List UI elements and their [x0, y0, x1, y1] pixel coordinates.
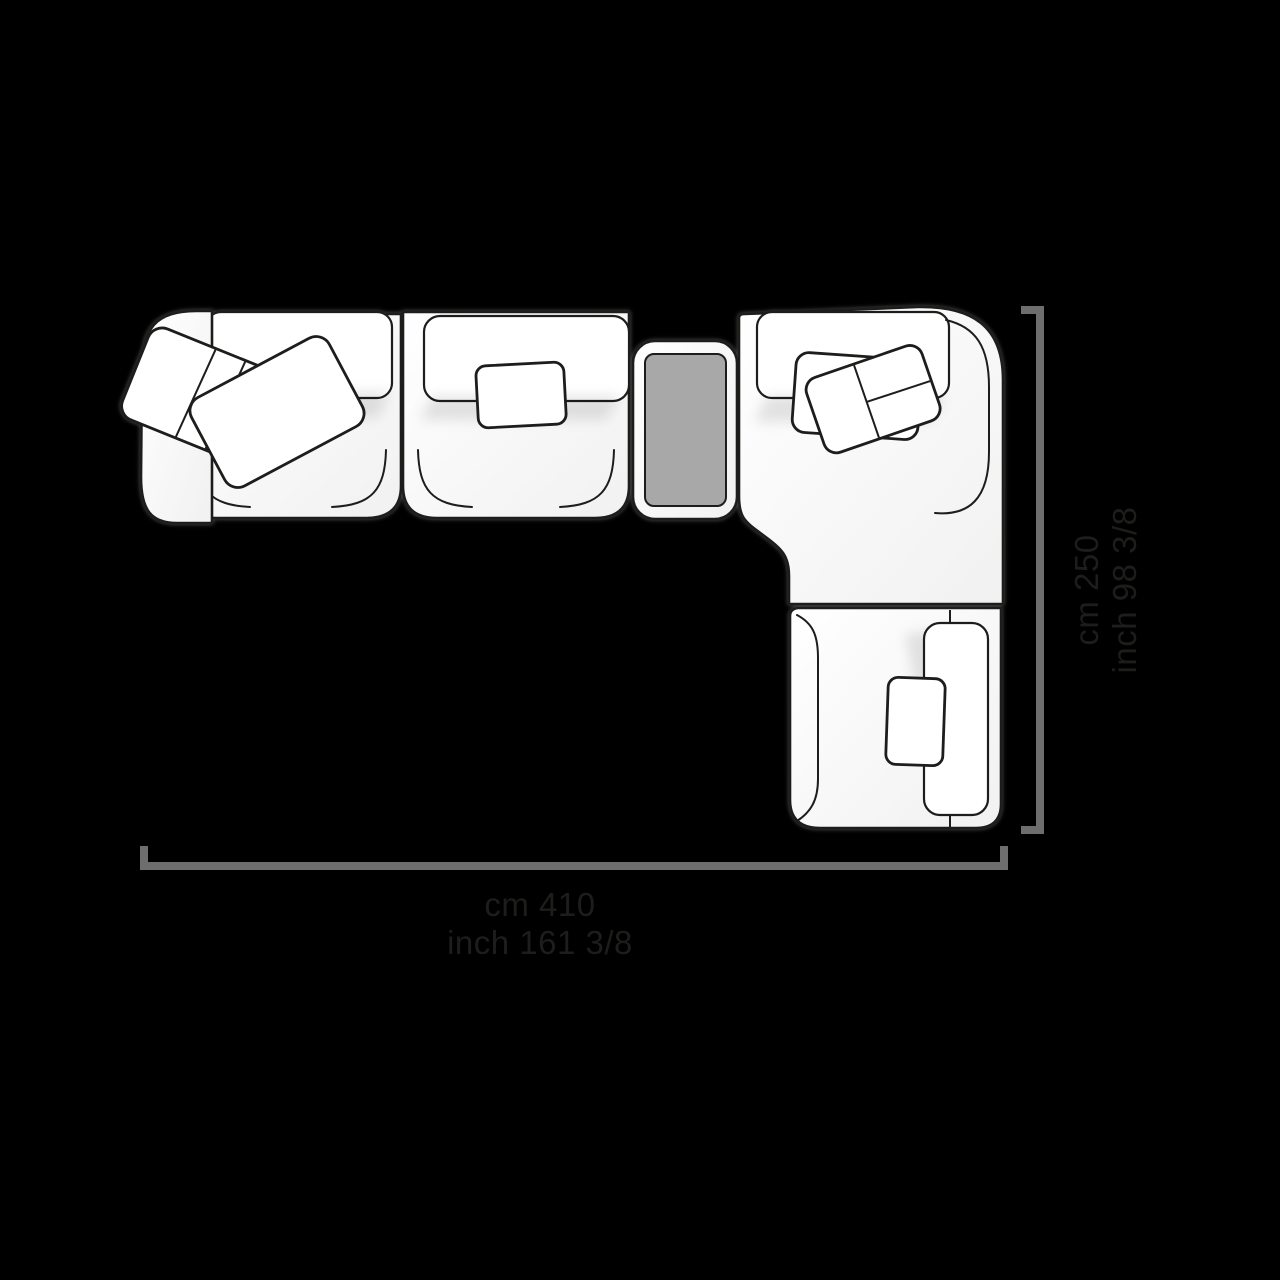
middle-pillow-body	[475, 362, 566, 429]
side-table-top	[645, 354, 726, 506]
width-cm-text: cm 410	[447, 886, 633, 924]
width-dimension-label: cm 410 inch 161 3/8	[447, 886, 633, 962]
diagram-stage: cm 410 inch 161 3/8 cm 250 inch 98 3/8	[0, 0, 1280, 1280]
middle-pillow	[475, 362, 566, 429]
depth-cm-text: cm 250	[1068, 507, 1106, 674]
depth-dimension-top-tick	[1021, 306, 1044, 314]
depth-dimension-bottom-tick	[1021, 826, 1044, 834]
width-inch-text: inch 161 3/8	[447, 924, 633, 962]
depth-dimension-label: cm 250 inch 98 3/8	[1068, 507, 1144, 674]
width-dimension-left-tick	[140, 846, 148, 870]
depth-dimension-line	[1036, 306, 1044, 834]
right-end-pillow	[885, 677, 945, 766]
width-dimension-line	[140, 862, 1008, 870]
depth-inch-text: inch 98 3/8	[1106, 507, 1144, 674]
width-dimension-right-tick	[1000, 846, 1008, 870]
right-end-pillow-body	[885, 677, 945, 766]
sofa-sections-group	[117, 307, 1003, 828]
